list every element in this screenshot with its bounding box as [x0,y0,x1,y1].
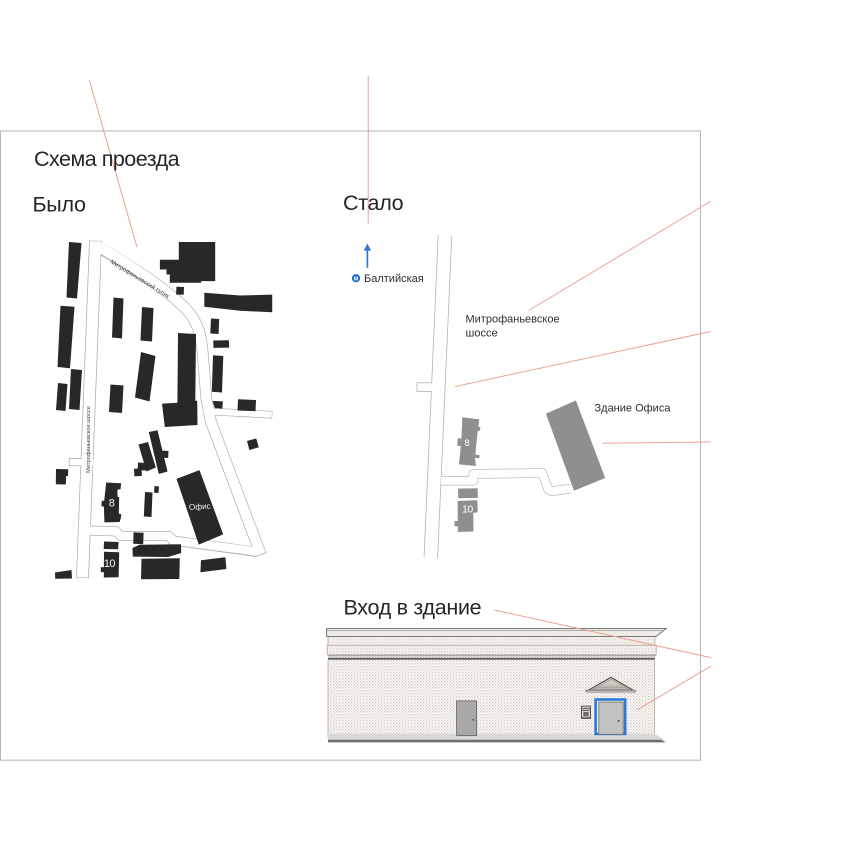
svg-text:Митрофаньевское шоссе: Митрофаньевское шоссе [86,406,92,473]
svg-text:Схема проезда: Схема проезда [34,147,180,171]
svg-text:Стало: Стало [343,191,404,215]
svg-text:10: 10 [104,558,116,570]
svg-text:Балтийская: Балтийская [364,273,424,285]
svg-text:шоссе: шоссе [466,328,498,340]
svg-text:8: 8 [109,498,115,510]
svg-text:M: M [354,277,359,283]
svg-text:Вход в здание: Вход в здание [344,596,482,620]
svg-text:Митрофаньевское: Митрофаньевское [466,314,560,326]
svg-text:10: 10 [462,504,473,516]
svg-text:8: 8 [464,438,469,449]
svg-text:Было: Было [33,193,86,217]
svg-text:Офис: Офис [189,502,211,512]
svg-text:Здание Офиса: Здание Офиса [595,403,672,415]
